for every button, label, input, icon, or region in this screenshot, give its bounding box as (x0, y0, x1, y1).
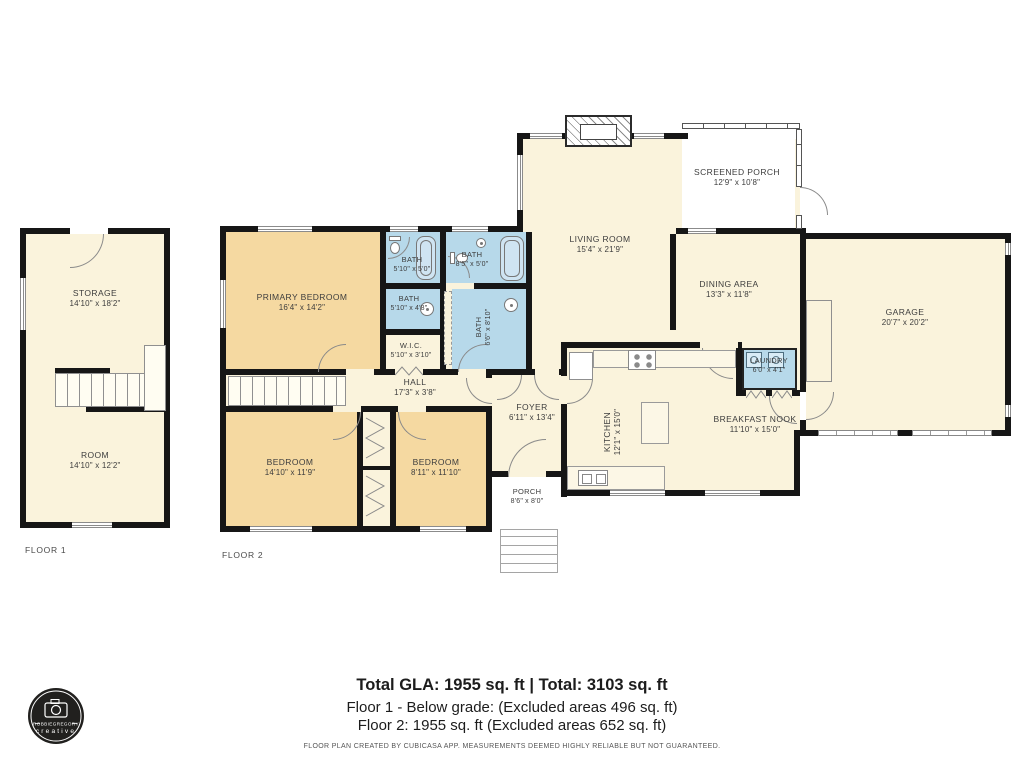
wic-label: W.I.C. 5'10" x 3'10" (384, 341, 438, 360)
room-dims: 13'3" x 11'8" (669, 290, 789, 300)
screened-porch-label: SCREENED PORCH 12'9" x 10'8" (677, 167, 797, 188)
room-name: ROOM (30, 450, 160, 461)
wall (380, 283, 446, 289)
room-dims: 8'11" x 11'10" (394, 468, 478, 478)
wall (800, 233, 1011, 239)
totals-line: Total GLA: 1955 sq. ft | Total: 3103 sq.… (0, 676, 1024, 695)
wall (561, 342, 700, 348)
wall (226, 406, 333, 412)
window-icon (610, 490, 665, 496)
wall (474, 283, 531, 289)
room-name: BREAKFAST NOOK (685, 414, 825, 425)
floor2-stairs (228, 376, 346, 406)
wall (426, 406, 492, 412)
room-name: DINING AREA (669, 279, 789, 290)
window-icon (634, 133, 664, 139)
garage-closet (806, 300, 832, 382)
wall (220, 226, 226, 532)
wall (794, 430, 800, 496)
room-dims: 16'4" x 14'2" (232, 303, 372, 313)
wall (380, 329, 446, 335)
window-icon (72, 522, 112, 528)
storage-dims: 14'10" x 18'2" (30, 299, 160, 309)
toilet-icon (389, 236, 401, 241)
laundry-label: LAUNDRY 6'0" x 4'1" (740, 356, 798, 375)
kitchen-label: KITCHEN 12'1" x 15'0" (602, 387, 642, 477)
wall (526, 232, 532, 372)
window-icon (1005, 405, 1011, 417)
floor1-closet (144, 345, 166, 411)
floor1-caption: FLOOR 1 (25, 545, 66, 555)
room-name: W.I.C. (384, 341, 438, 351)
bifold-door-icon (395, 366, 423, 377)
room-dims: 15'4" x 21'9" (540, 245, 660, 255)
storage-label: STORAGE 14'10" x 18'2" (30, 288, 160, 309)
room-dims: 5'10" x 4'8" (382, 304, 436, 313)
room-dims: 8'6" x 8'0" (492, 497, 562, 506)
floor2-caption: FLOOR 2 (222, 550, 263, 560)
wall (561, 490, 610, 496)
window-icon (517, 155, 523, 210)
wall (1005, 255, 1011, 405)
wall (716, 228, 806, 234)
room-name: PORCH (492, 487, 562, 497)
room-dims: 11'10" x 15'0" (685, 425, 825, 435)
bath-d-label: BATH 6'6" x 8'10" (474, 292, 510, 362)
wall (363, 466, 390, 470)
room-dims: 14'10" x 12'2" (30, 461, 160, 471)
room-name: BATH (382, 294, 436, 304)
primary-bedroom-label: PRIMARY BEDROOM 16'4" x 14'2" (232, 292, 372, 313)
dining-area-label: DINING AREA 13'3" x 11'8" (669, 279, 789, 300)
window-icon (688, 228, 716, 234)
window-icon (250, 526, 312, 532)
kitchen-island (641, 402, 669, 444)
wall (898, 430, 912, 436)
room-dims: 17'3" x 3'8" (355, 388, 475, 398)
garage-fill (806, 239, 1005, 430)
sink-icon (476, 238, 486, 248)
porch-label: PORCH 8'6" x 8'0" (492, 487, 562, 506)
room-name: LIVING ROOM (540, 234, 660, 245)
wall (676, 228, 688, 234)
room-dims: 6'0" x 4'1" (740, 366, 798, 375)
bifold-door-icon (772, 390, 792, 400)
window-icon (1005, 243, 1011, 255)
bedroom-left-label: BEDROOM 14'10" x 11'9" (230, 457, 350, 478)
bath-a-label: BATH 5'10" x 5'0" (386, 255, 438, 274)
bathtub-icon (500, 236, 524, 281)
floor-plan-page: STORAGE 14'10" x 18'2" ROOM 14'10" x 12'… (0, 0, 1024, 768)
refrigerator-icon (569, 352, 593, 380)
sink-basin (582, 474, 592, 484)
window-icon (20, 278, 26, 330)
window-icon (220, 280, 226, 328)
closet-bifold-icon (364, 416, 388, 462)
room-name: PRIMARY BEDROOM (232, 292, 372, 303)
wall (665, 490, 705, 496)
room-label: ROOM 14'10" x 12'2" (30, 450, 160, 471)
bath-c-label: BATH 5'10" x 4'8" (382, 294, 436, 313)
disclaimer: FLOOR PLAN CREATED BY CUBICASA APP. MEAS… (0, 743, 1024, 750)
room-dims: 20'7" x 20'2" (845, 318, 965, 328)
room-dims: 6'6" x 8'10" (484, 292, 493, 362)
wall (546, 471, 567, 477)
logo-badge-icon: ROBBIEGREGORY creative (27, 687, 85, 745)
room-name: BATH (386, 255, 438, 265)
hall-label: HALL 17'3" x 3'8" (355, 377, 475, 398)
bath-b-label: BATH 8'5" x 5'0" (442, 250, 502, 269)
room-name: GARAGE (845, 307, 965, 318)
room-name: SCREENED PORCH (677, 167, 797, 178)
room-name: KITCHEN (602, 387, 613, 477)
wall (992, 430, 1011, 436)
toilet-icon (390, 242, 400, 254)
room-dims: 12'9" x 10'8" (677, 178, 797, 188)
window-icon (258, 226, 312, 232)
room-dims: 8'5" x 5'0" (442, 260, 502, 269)
garage-label: GARAGE 20'7" x 20'2" (845, 307, 965, 328)
living-room-label: LIVING ROOM 15'4" x 21'9" (540, 234, 660, 255)
garage-door-icon (818, 430, 898, 436)
wall (492, 471, 508, 477)
wall (486, 406, 492, 532)
room-name: HALL (355, 377, 475, 388)
logo-sub-text: creative (36, 728, 76, 735)
porch-door-arc-icon (800, 187, 828, 215)
wall (559, 369, 567, 375)
room-dims: 5'10" x 3'10" (384, 351, 438, 360)
window-icon (452, 226, 488, 232)
garage-door-icon (912, 430, 992, 436)
stove-icon (628, 350, 656, 370)
wall (736, 390, 746, 396)
screen-wall (796, 215, 802, 229)
wall (55, 368, 110, 373)
bedroom-right-label: BEDROOM 8'11" x 11'10" (394, 457, 478, 478)
room-name: BEDROOM (230, 457, 350, 468)
foyer-label: FOYER 6'11" x 13'4" (492, 402, 572, 423)
wall (760, 490, 800, 496)
breakfast-nook-label: BREAKFAST NOOK 11'10" x 15'0" (685, 414, 825, 435)
closet-bifold-icon (364, 474, 388, 520)
room-name: LAUNDRY (740, 356, 798, 366)
room-name: BATH (474, 292, 484, 362)
room-dims: 14'10" x 11'9" (230, 468, 350, 478)
window-icon (420, 526, 466, 532)
floor2-note: Floor 2: 1955 sq. ft (Excluded areas 652… (0, 717, 1024, 734)
kitchen-counter (593, 350, 736, 368)
window-icon (530, 133, 562, 139)
wall (1005, 233, 1011, 243)
screen-wall (682, 123, 800, 129)
room-dims: 5'10" x 5'0" (386, 265, 438, 274)
window-icon (390, 226, 418, 232)
floor1-note: Floor 1 - Below grade: (Excluded areas 4… (0, 699, 1024, 716)
logo-brand-text: ROBBIEGREGORY (33, 722, 79, 727)
room-name: BEDROOM (394, 457, 478, 468)
room-name: FOYER (492, 402, 572, 413)
photographer-logo: ROBBIEGREGORY creative (27, 687, 85, 750)
room-dims: 6'11" x 13'4" (492, 413, 572, 423)
porch-steps (500, 529, 558, 573)
room-name: BATH (442, 250, 502, 260)
room-dims: 12'1" x 15'0" (613, 387, 623, 477)
bifold-door-icon (746, 390, 766, 400)
window-icon (705, 490, 760, 496)
fireplace-insert-icon (580, 124, 617, 140)
storage-name: STORAGE (30, 288, 160, 299)
linen-closet (444, 291, 452, 365)
